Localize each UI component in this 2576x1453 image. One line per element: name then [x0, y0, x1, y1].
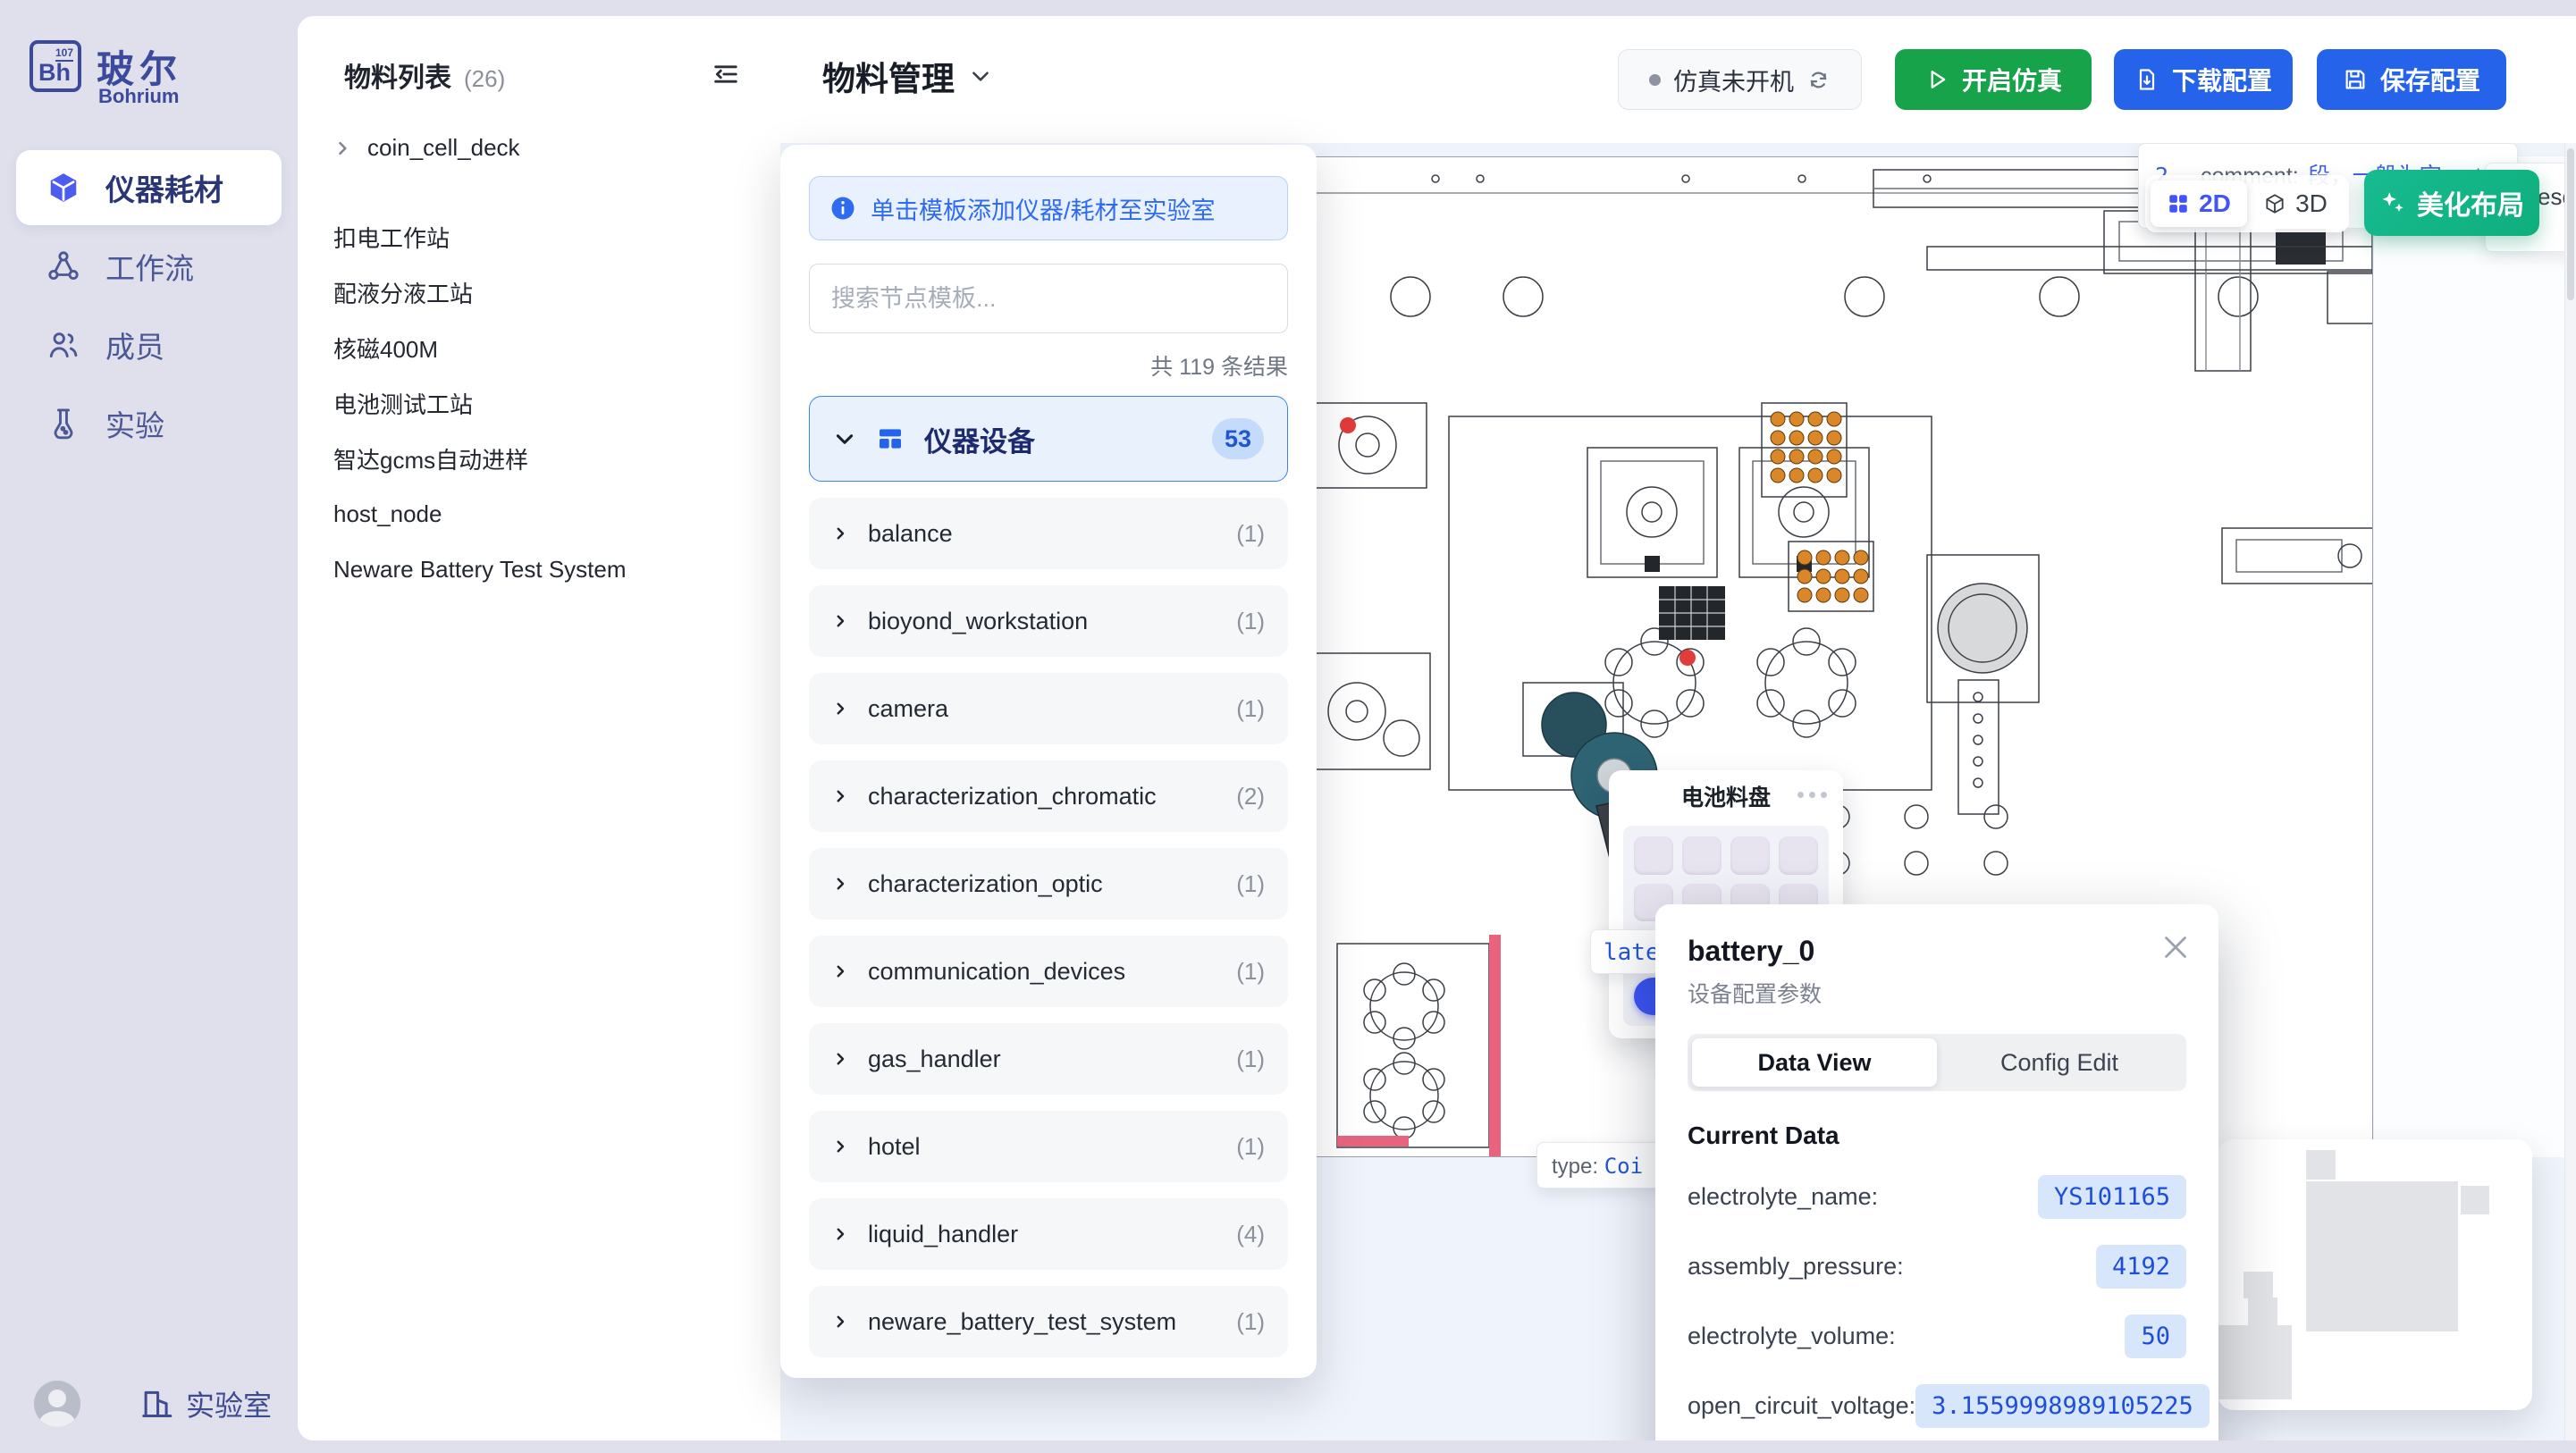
save-config-button[interactable]: 保存配置: [2317, 49, 2506, 110]
view-mode-toggle: 2D 3D: [2145, 175, 2349, 232]
template-item-camera[interactable]: camera (1): [809, 673, 1288, 744]
template-item-count: (4): [1236, 1221, 1265, 1248]
sidebar: 107 Bh 玻尔 Bohrium 仪器耗材 工作流 成员 实验 实验室: [0, 0, 298, 1453]
chevron-right-icon: [832, 963, 848, 979]
tree-item-label: 电池测试工站: [333, 387, 473, 420]
status-dot: [1649, 74, 1661, 86]
sidebar-item-workflow[interactable]: 工作流: [16, 229, 282, 304]
chevron-right-icon: [832, 1051, 848, 1067]
info-icon: [829, 195, 856, 222]
tree-item-label: 核磁400M: [333, 332, 438, 365]
tree-item[interactable]: 配液分液工站: [333, 265, 745, 320]
download-config-label: 下载配置: [2172, 62, 2272, 97]
material-list-header: 物料列表 (26): [344, 55, 505, 95]
download-config-button[interactable]: 下载配置: [2114, 49, 2293, 110]
tab-data-view[interactable]: Data View: [1692, 1038, 1937, 1087]
tree-item-label: coin_cell_deck: [367, 134, 520, 162]
members-icon: [46, 328, 80, 362]
logo-symbol: Bh: [38, 59, 71, 87]
template-item-bioyond-workstation[interactable]: bioyond_workstation (1): [809, 585, 1288, 657]
data-field-row: assembly_pressure: 4192: [1688, 1243, 2186, 1289]
bohrium-logo: 107 Bh: [29, 40, 81, 92]
view-2d-button[interactable]: 2D: [2151, 181, 2247, 227]
save-config-label: 保存配置: [2380, 62, 2480, 97]
save-icon: [2343, 67, 2368, 92]
search-input[interactable]: [809, 264, 1288, 333]
result-count: 共 119 条结果: [809, 349, 1288, 382]
test-tube-icon: [46, 407, 80, 441]
brand-name-en: Bohrium: [98, 85, 179, 108]
template-item-liquid-handler[interactable]: liquid_handler (4): [809, 1198, 1288, 1270]
template-item-count: (1): [1236, 1308, 1265, 1336]
sidebar-item-label: 工作流: [105, 245, 194, 288]
tree-item-label: 智达gcms自动进样: [333, 442, 528, 475]
tree-item-label: 扣电工作站: [333, 221, 450, 254]
template-item-label: communication_devices: [868, 958, 1216, 986]
template-item-count: (1): [1236, 520, 1265, 548]
tree-item-coin-cell-deck[interactable]: coin_cell_deck: [333, 134, 520, 162]
tab-config-edit[interactable]: Config Edit: [1937, 1038, 2182, 1087]
data-field-row: electrolyte_volume: 50: [1688, 1313, 2186, 1359]
battery-slot[interactable]: [1730, 836, 1770, 875]
page-title: 物料管理: [822, 52, 955, 100]
template-item-hotel[interactable]: hotel (1): [809, 1111, 1288, 1182]
type-key: type:: [1552, 1155, 1598, 1179]
template-item-count: (1): [1236, 695, 1265, 723]
sidebar-item-label: 实验: [105, 402, 164, 445]
topbar: 物料管理 仿真未开机 开启仿真 下载配置 保存配置: [780, 16, 2576, 144]
field-label: electrolyte_name:: [1688, 1183, 1878, 1211]
popup-section-title: Current Data: [1688, 1121, 2186, 1150]
view-2d-label: 2D: [2199, 189, 2231, 218]
field-value: YS101165: [2038, 1175, 2186, 1219]
popup-tab-bar: Data View Config Edit: [1688, 1034, 2186, 1091]
beautify-layout-button[interactable]: 美化布局: [2364, 170, 2539, 236]
field-label: open_circuit_voltage:: [1688, 1392, 1915, 1420]
close-icon[interactable]: [2159, 931, 2192, 963]
collapse-panel-icon[interactable]: [711, 59, 741, 89]
chevron-right-icon: [832, 525, 848, 542]
scrollbar-thumb[interactable]: [2567, 148, 2574, 300]
main-card: 物料列表 (26) coin_cell_deck 扣电工作站 配液分液工站 核磁…: [298, 16, 2576, 1440]
sparkles-icon: [2379, 189, 2406, 216]
status-label: 仿真未开机: [1673, 63, 1794, 97]
start-simulation-button[interactable]: 开启仿真: [1895, 49, 2092, 110]
template-item-label: characterization_optic: [868, 870, 1216, 898]
tree-item[interactable]: 电池测试工站: [333, 375, 745, 431]
scrollbar[interactable]: [2564, 143, 2576, 1440]
chevron-right-icon: [832, 1314, 848, 1330]
tree-item-label: Neware Battery Test System: [333, 556, 627, 584]
sidebar-item-label: 仪器耗材: [105, 166, 223, 209]
lab-switcher[interactable]: 实验室: [139, 1383, 272, 1424]
avatar[interactable]: [34, 1381, 80, 1427]
building-icon: [139, 1387, 173, 1421]
page-title-dropdown[interactable]: 物料管理: [822, 52, 992, 100]
sidebar-item-experiments[interactable]: 实验: [16, 386, 282, 461]
grid-2d-icon: [2167, 192, 2190, 215]
sidebar-footer: 实验室: [0, 1355, 298, 1453]
play-icon: [1924, 67, 1949, 92]
template-item-count: (2): [1236, 783, 1265, 810]
field-label: electrolyte_volume:: [1688, 1323, 1896, 1350]
view-3d-button[interactable]: 3D: [2247, 181, 2344, 227]
template-item-communication-devices[interactable]: communication_devices (1): [809, 936, 1288, 1007]
type-value: Coi: [1604, 1154, 1643, 1179]
chevron-right-icon: [832, 876, 848, 892]
view-3d-label: 3D: [2295, 189, 2328, 218]
template-hint-banner: 单击模板添加仪器/耗材至实验室: [809, 176, 1288, 240]
chevron-right-icon: [832, 1226, 848, 1242]
workflow-icon: [46, 249, 80, 283]
field-label: assembly_pressure:: [1688, 1253, 1904, 1281]
lab-label: 实验室: [186, 1383, 272, 1424]
category-instruments[interactable]: 仪器设备 53: [809, 396, 1288, 482]
table-grid-icon: [876, 424, 905, 453]
template-item-count: (1): [1236, 608, 1265, 635]
template-item-label: camera: [868, 695, 1216, 723]
template-item-characterization-chromatic[interactable]: characterization_chromatic (2): [809, 760, 1288, 832]
tree-item-label: host_node: [333, 500, 442, 528]
chevron-right-icon: [832, 613, 848, 629]
minimap[interactable]: [2218, 1139, 2532, 1410]
template-item-label: hotel: [868, 1133, 1216, 1161]
popup-subtitle: 设备配置参数: [1688, 977, 2186, 1009]
device-config-popup: battery_0 设备配置参数 Data View Config Edit C…: [1655, 904, 2218, 1440]
battery-tray-title: 电池料盘: [1681, 780, 1771, 812]
template-item-neware-battery-test-system[interactable]: neware_battery_test_system (1): [809, 1286, 1288, 1357]
tree-item[interactable]: host_node: [333, 486, 745, 542]
cube-3d-icon: [2263, 192, 2286, 215]
template-item-label: balance: [868, 520, 1216, 548]
field-value: 4192: [2096, 1245, 2186, 1289]
sidebar-item-instruments[interactable]: 仪器耗材: [16, 150, 282, 225]
tree-item[interactable]: 扣电工作站: [333, 209, 745, 265]
template-item-count: (1): [1236, 870, 1265, 898]
sidebar-item-label: 成员: [105, 323, 164, 366]
more-options-icon[interactable]: [1797, 792, 1827, 798]
template-item-count: (1): [1236, 1133, 1265, 1161]
chevron-right-icon: [333, 139, 351, 157]
battery-slot[interactable]: [1682, 836, 1722, 875]
data-field-row: open_circuit_voltage: 3.1559998989105225: [1688, 1382, 2186, 1429]
chevron-right-icon: [832, 701, 848, 717]
beautify-label: 美化布局: [2417, 183, 2524, 223]
category-badge: 53: [1212, 418, 1264, 459]
category-label: 仪器设备: [924, 419, 1192, 459]
chevron-down-icon: [969, 64, 992, 88]
template-item-label: gas_handler: [868, 1046, 1216, 1073]
tree-item-label: 配液分液工站: [333, 276, 473, 309]
template-item-label: liquid_handler: [868, 1221, 1216, 1248]
download-file-icon: [2134, 67, 2159, 92]
battery-slot[interactable]: [1634, 836, 1673, 875]
chevron-right-icon: [832, 788, 848, 804]
template-item-label: neware_battery_test_system: [868, 1308, 1216, 1336]
tree-item[interactable]: Neware Battery Test System: [333, 542, 745, 597]
tree-item[interactable]: 智达gcms自动进样: [333, 431, 745, 486]
template-item-label: bioyond_workstation: [868, 608, 1216, 635]
data-field-row: electrolyte_name: YS101165: [1688, 1173, 2186, 1220]
material-list-panel: 物料列表 (26) coin_cell_deck 扣电工作站 配液分液工站 核磁…: [298, 16, 781, 1440]
battery-slot[interactable]: [1779, 836, 1818, 875]
canvas-right-area: [2374, 156, 2576, 1157]
chevron-right-icon: [832, 1138, 848, 1155]
refresh-icon[interactable]: [1806, 68, 1831, 92]
field-value: 3.1559998989105225: [1915, 1384, 2210, 1428]
template-item-balance[interactable]: balance (1): [809, 498, 1288, 569]
plate-partial-text: late: [1604, 939, 1660, 966]
tree-item[interactable]: 核磁400M: [333, 320, 745, 375]
material-list-count: (26): [464, 65, 505, 93]
template-item-count: (1): [1236, 1046, 1265, 1073]
sidebar-item-members[interactable]: 成员: [16, 307, 282, 382]
template-item-gas-handler[interactable]: gas_handler (1): [809, 1023, 1288, 1095]
template-panel: 单击模板添加仪器/耗材至实验室 共 119 条结果 仪器设备 53 balanc…: [780, 145, 1317, 1378]
simulation-status-pill[interactable]: 仿真未开机: [1618, 49, 1862, 110]
chevron-down-icon: [833, 427, 856, 450]
template-item-characterization-optic[interactable]: characterization_optic (1): [809, 848, 1288, 920]
template-hint-text: 单击模板添加仪器/耗材至实验室: [871, 191, 1216, 226]
type-tooltip-partial: type: Coi: [1536, 1142, 1667, 1188]
start-simulation-label: 开启仿真: [1962, 62, 2062, 97]
field-value: 50: [2125, 1314, 2186, 1358]
popup-title: battery_0: [1688, 935, 2186, 968]
material-list-title: 物料列表: [344, 55, 451, 95]
app-root: 107 Bh 玻尔 Bohrium 仪器耗材 工作流 成员 实验 实验室: [0, 0, 2576, 1453]
template-item-label: characterization_chromatic: [868, 783, 1216, 810]
cube-icon: [46, 171, 80, 205]
template-item-count: (1): [1236, 958, 1265, 986]
